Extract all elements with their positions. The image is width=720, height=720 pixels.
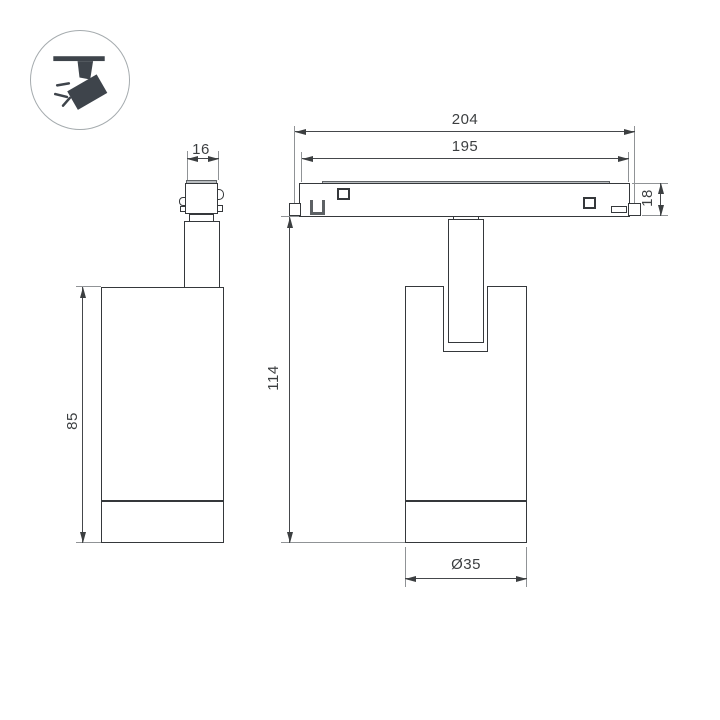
body-trim-line-front	[406, 500, 526, 502]
icon-stem	[78, 61, 94, 79]
body-trim-line-side	[102, 500, 223, 502]
dim-label-body-diameter: Ø35	[436, 557, 496, 573]
dim-line-85	[82, 287, 83, 543]
dim-line-35	[405, 578, 527, 579]
arrow-195-left	[302, 156, 313, 162]
dim-line-195	[302, 158, 629, 159]
track-spotlight-icon	[31, 31, 128, 128]
arrow-204-right	[624, 129, 635, 135]
arrow-85-bottom	[80, 532, 86, 543]
arm-front	[448, 219, 484, 343]
dim-label-body-height: 85	[65, 405, 81, 437]
dim-label-fixture-height: 114	[266, 358, 282, 398]
dim-label-track-inner: 195	[433, 139, 497, 155]
arrow-35-right	[516, 576, 527, 582]
arrow-114-top	[287, 217, 293, 228]
ext-line-114-bottom	[281, 542, 405, 543]
u-clip	[310, 200, 325, 215]
arrow-204-left	[295, 129, 306, 135]
dim-label-track-height: 18	[640, 183, 656, 213]
arm-side	[184, 221, 220, 289]
ext-line-18-bottom	[642, 215, 668, 216]
ext-line-204-right	[634, 126, 635, 203]
icon-lamp-head	[67, 74, 107, 109]
icon-circle	[30, 30, 130, 130]
slot-right	[611, 206, 627, 213]
icon-ceiling-track	[53, 56, 104, 61]
arrow-114-bottom	[287, 532, 293, 543]
arrow-18-top	[658, 183, 664, 194]
dim-line-204	[295, 131, 635, 132]
square-port-left	[337, 188, 350, 200]
icon-light-rays	[55, 83, 70, 105]
arrow-195-right	[618, 156, 629, 162]
body-side	[101, 287, 224, 543]
dim-label-adapter-width: 16	[185, 142, 217, 158]
arrow-85-top	[80, 287, 86, 298]
arrow-35-left	[405, 576, 416, 582]
adapter-box-side	[185, 183, 218, 214]
dim-label-track-outer: 204	[433, 112, 497, 128]
ext-line-204-left	[294, 126, 295, 203]
square-port-right	[583, 197, 596, 209]
end-tab-left	[289, 203, 301, 216]
arrow-18-bottom	[658, 205, 664, 216]
dim-line-114	[289, 217, 290, 543]
dimension-drawing: 16 85 204 195 18	[0, 0, 720, 720]
